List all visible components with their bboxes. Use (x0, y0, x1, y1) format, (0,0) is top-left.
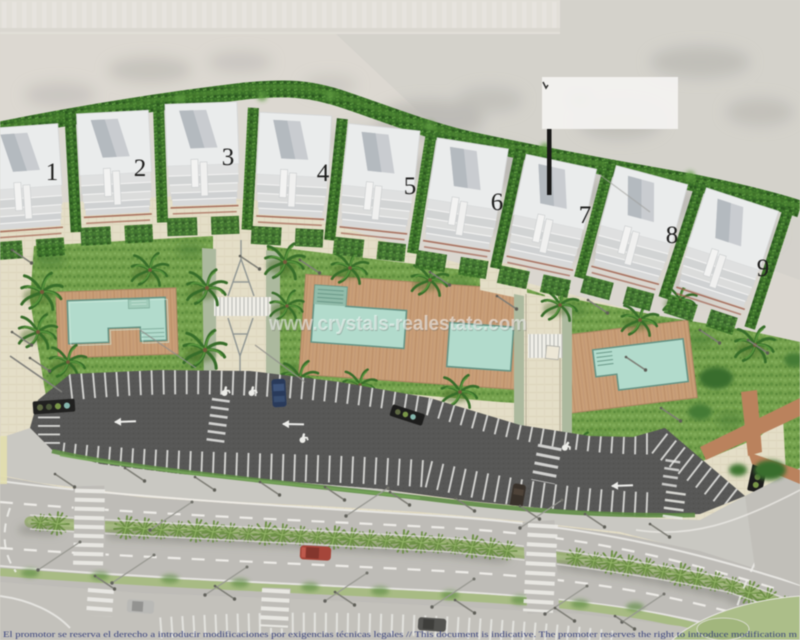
svg-text:El promotor se reserva el dere: El promotor se reserva el derecho a intr… (3, 629, 797, 639)
svg-text:www.crystals-realestate.com: www.crystals-realestate.com (268, 313, 527, 335)
